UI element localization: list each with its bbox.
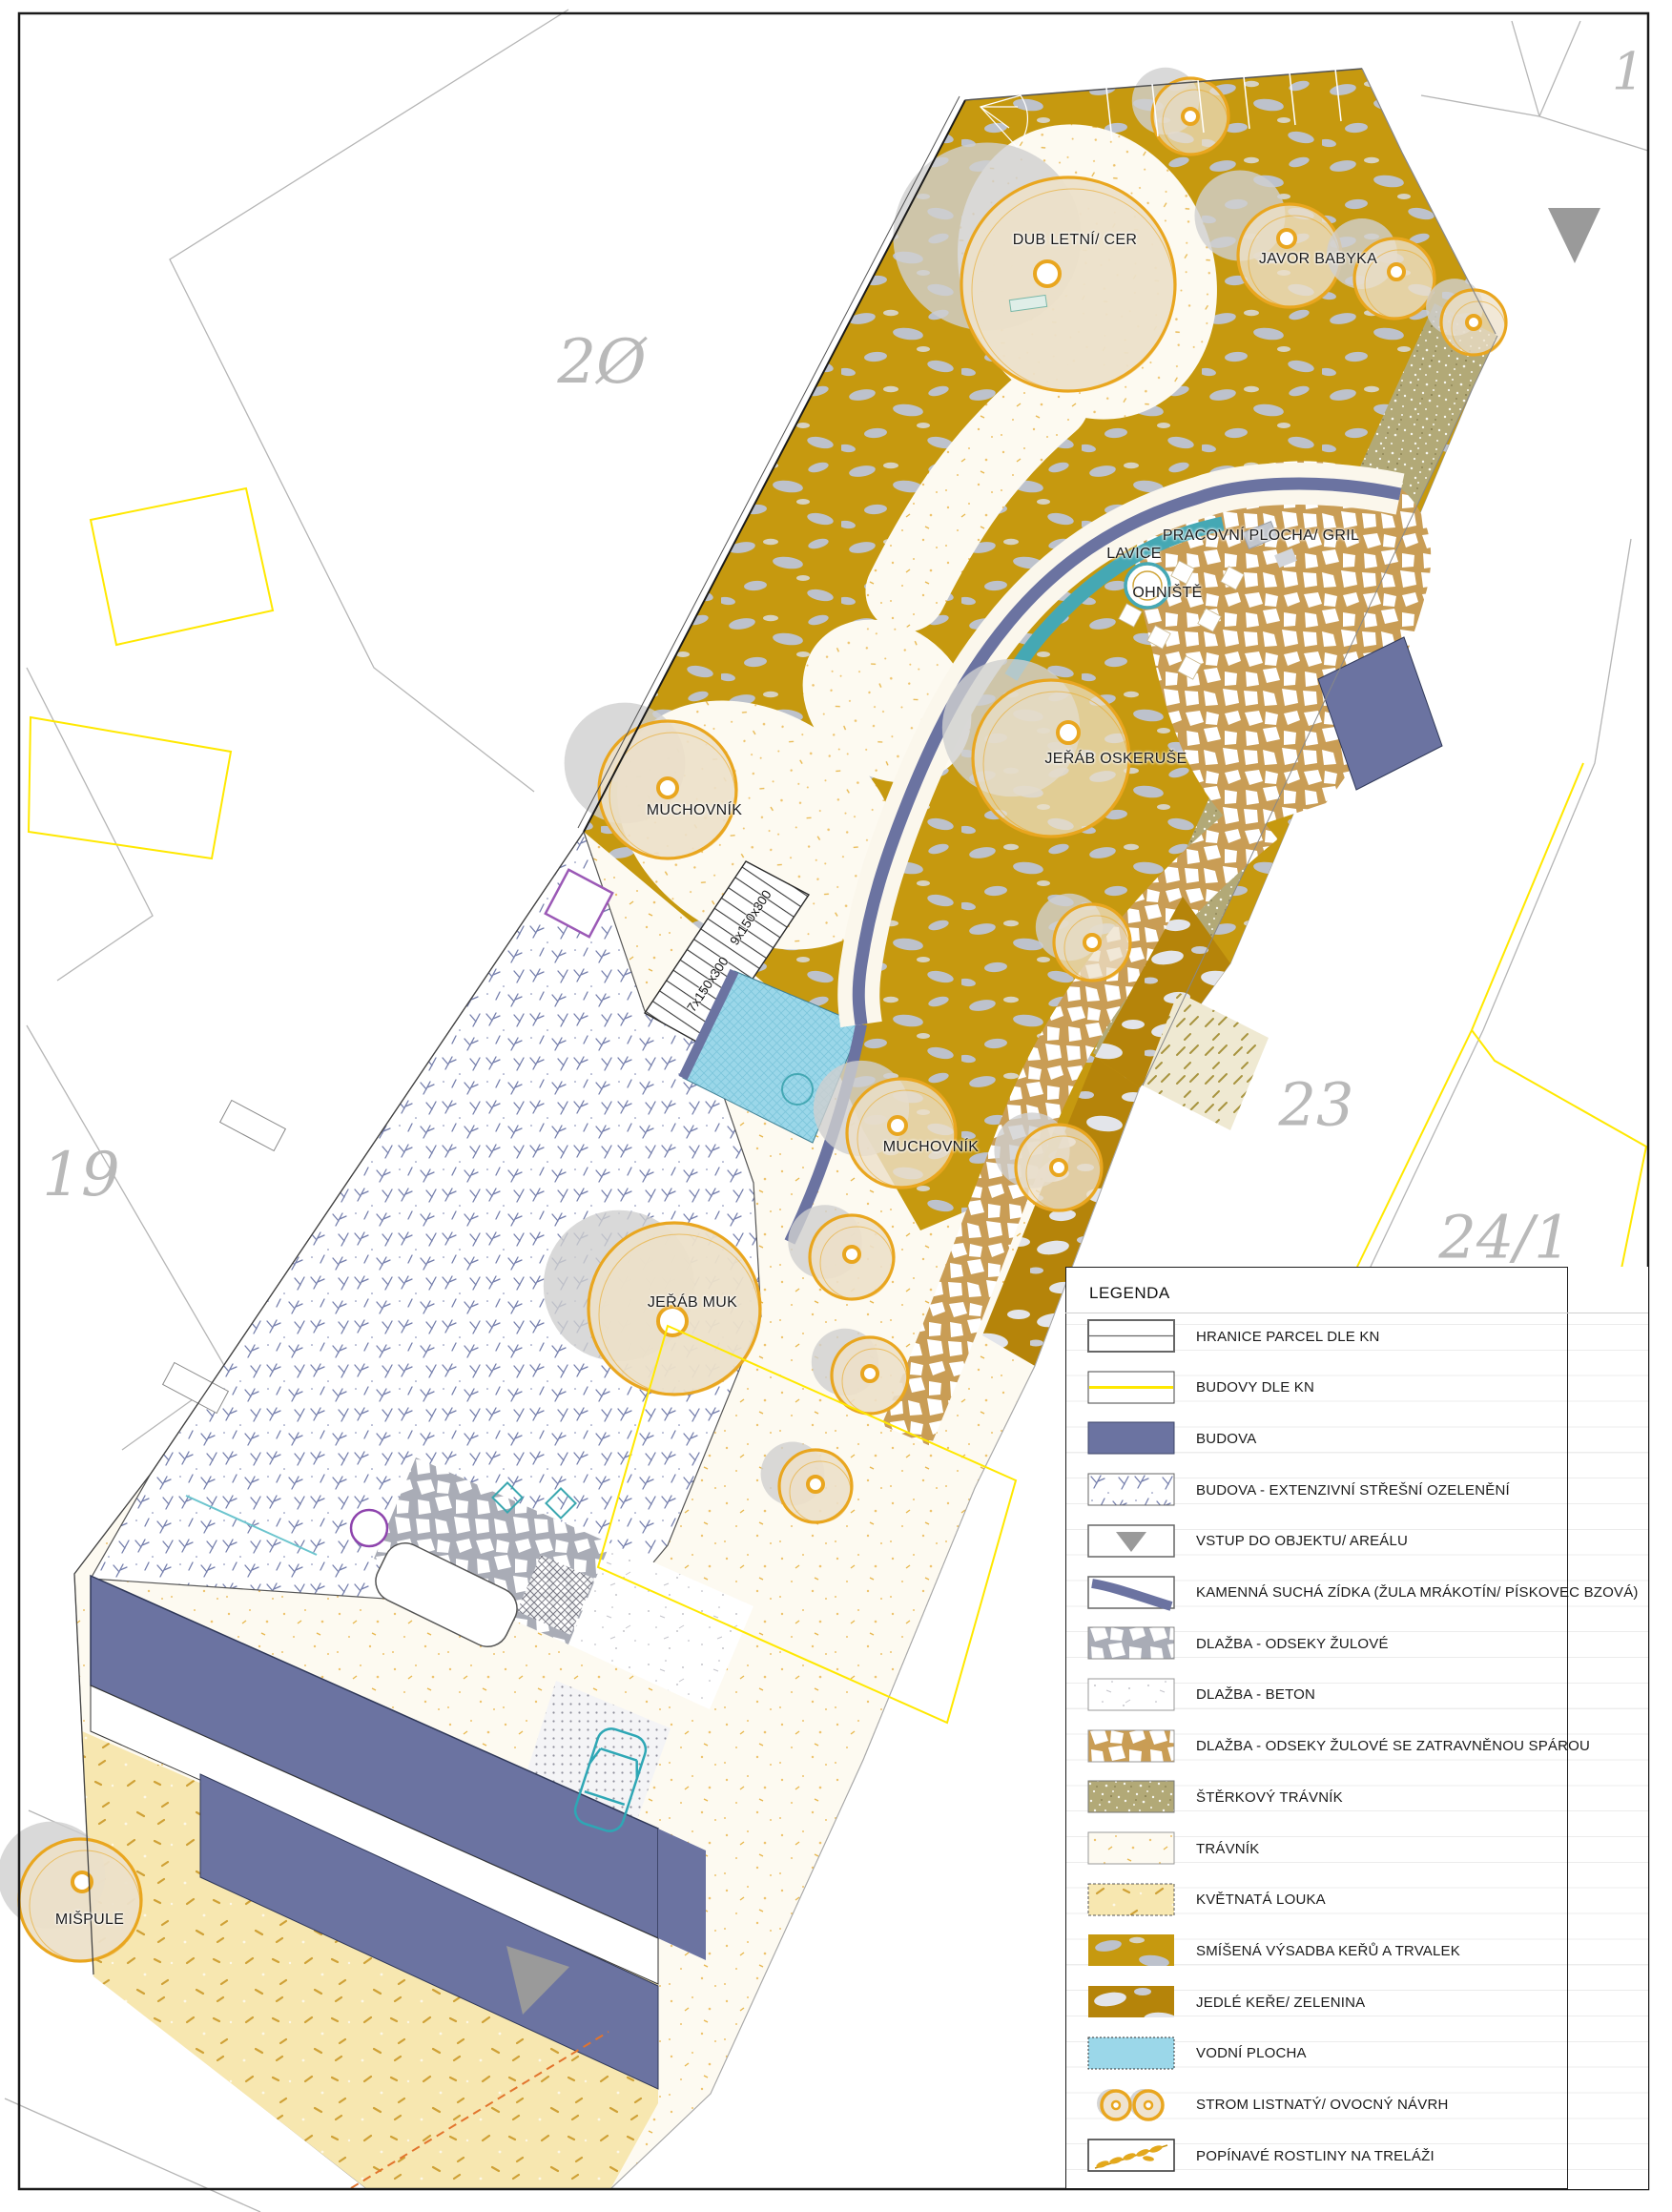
legend-item-travnik: TRÁVNÍK [1087,1824,1644,1873]
plan-label-javor-babyka: JAVOR BABYKA [1259,251,1377,268]
plan-label-jerab-oskeruse: JEŘÁB OSKERUŠE [1044,751,1187,768]
legend-item-label: VSTUP DO OBJEKTU/ AREÁLU [1196,1533,1408,1549]
legend-item-label: BUDOVA [1196,1431,1256,1447]
legend-item-sterk: ŠTĚRKOVÝ TRÁVNÍK [1087,1772,1644,1822]
tree-trunk [862,1366,877,1381]
parcel-19: 19 [42,1140,119,1210]
tree-trunk [1051,1160,1066,1175]
plan-label-lavice: LAVICE [1106,546,1162,563]
legend-item-strecha: BUDOVA - EXTENZIVNÍ STŘEŠNÍ OZELENĚNÍ [1087,1465,1644,1515]
roof-bench [220,1100,286,1150]
plan-label-ohniste: OHNIŠTĚ [1132,585,1202,602]
legend-item-budovy-kn: BUDOVY DLE KN [1087,1363,1644,1413]
parcel-23: 23 [1279,1070,1354,1140]
legend-swatch-vstup [1087,1523,1175,1560]
legend-item-smisena: SMÍŠENÁ VÝSADBA KEŘŮ A TRVALEK [1087,1926,1644,1975]
tree-trunk [844,1247,859,1262]
legend-swatch-strecha [1087,1472,1175,1508]
plan-label-muchovnik-1: MUCHOVNÍK [647,802,742,819]
legend-swatch-budovy-kn [1087,1370,1175,1406]
legend-item-label: KVĚTNATÁ LOUKA [1196,1892,1326,1908]
legend-item-vstup: VSTUP DO OBJEKTU/ AREÁLU [1087,1517,1644,1566]
legend-item-label: JEDLÉ KEŘE/ ZELENINA [1196,1995,1365,2011]
legend-swatch-louka [1087,1882,1175,1918]
legend-item-label: BUDOVY DLE KN [1196,1379,1314,1395]
legend-item-strom: STROM LISTNATÝ/ OVOCNÝ NÁVRH [1087,2080,1644,2130]
legend-swatch-dlazba-zulova [1087,1625,1175,1662]
legend-panel: LEGENDA HRANICE PARCEL DLE KNBUDOVY DLE … [1065,1267,1648,2189]
legend-swatch-budova [1087,1420,1175,1457]
legend-item-dlazba-spara: DLAŽBA - ODSEKY ŽULOVÉ SE ZATRAVNĚNOU SP… [1087,1722,1644,1771]
legend-item-label: KAMENNÁ SUCHÁ ZÍDKA (ŽULA MRÁKOTÍN/ PÍSK… [1196,1584,1639,1601]
plan-label-jerab-muk: JEŘÁB MUK [648,1294,737,1312]
legend-item-label: HRANICE PARCEL DLE KN [1196,1329,1380,1345]
legend-item-label: SMÍŠENÁ VÝSADBA KEŘŮ A TRVALEK [1196,1943,1460,1959]
parcel-1: 1 [1612,42,1644,102]
tree-trunk [1278,230,1295,247]
legend-item-label: ŠTĚRKOVÝ TRÁVNÍK [1196,1789,1343,1806]
roof-bench [163,1362,229,1413]
plan-label-pracovni-plocha: PRACOVNÍ PLOCHA/ GRIL [1163,527,1359,545]
tree-trunk [1058,722,1079,743]
plan-label-muchovnik-2: MUCHOVNÍK [883,1139,979,1156]
legend-swatch-jedle [1087,1984,1175,2020]
legend-item-hranice: HRANICE PARCEL DLE KN [1087,1312,1644,1361]
legend-swatch-strom [1087,2087,1175,2123]
tree-trunk [1084,935,1100,950]
legend-item-label: STROM LISTNATÝ/ OVOCNÝ NÁVRH [1196,2097,1449,2113]
legend-title: LEGENDA [1089,1284,1170,1303]
legend-item-label: BUDOVA - EXTENZIVNÍ STŘEŠNÍ OZELENĚNÍ [1196,1482,1510,1499]
legend-swatch-sterk [1087,1779,1175,1815]
plan-label-dub-letni-cer: DUB LETNÍ/ CER [1013,232,1137,249]
legend-item-label: TRÁVNÍK [1196,1841,1259,1857]
tree-trunk [889,1117,906,1134]
legend-item-label: DLAŽBA - ODSEKY ŽULOVÉ [1196,1636,1389,1652]
legend-item-zidka: KAMENNÁ SUCHÁ ZÍDKA (ŽULA MRÁKOTÍN/ PÍSK… [1087,1568,1644,1618]
legend-item-voda: VODNÍ PLOCHA [1087,2029,1644,2078]
tree-trunk [1035,261,1060,286]
legend-swatch-voda [1087,2036,1175,2072]
water-sphere [782,1074,813,1105]
legend-item-label: DLAŽBA - BETON [1196,1686,1315,1703]
tree-trunk [1183,109,1198,124]
legend-item-label: VODNÍ PLOCHA [1196,2045,1307,2061]
legend-swatch-travnik [1087,1830,1175,1867]
tree-trunk [808,1477,823,1492]
parcel-20: 2Ø [557,327,646,398]
tree-trunk [658,778,677,797]
tree-trunk [1467,316,1480,329]
building-end-block [658,1829,706,1960]
legend-item-dlazba-zulova: DLAŽBA - ODSEKY ŽULOVÉ [1087,1619,1644,1668]
plan-label-mispule: MIŠPULE [55,1912,124,1929]
legend-item-popinave: POPÍNAVÉ ROSTLINY NA TRELÁŽI [1087,2131,1644,2181]
legend-item-label: POPÍNAVÉ ROSTLINY NA TRELÁŽI [1196,2148,1435,2164]
legend-item-budova: BUDOVA [1087,1414,1644,1463]
tree-trunk [1389,264,1404,279]
entrance-arrow-top [1548,208,1600,263]
roof-circle-opening [351,1510,387,1546]
site-plan-page: DUB LETNÍ/ CERJAVOR BABYKAPRACOVNÍ PLOCH… [0,0,1672,2212]
legend-swatch-popinave [1087,2138,1175,2174]
legend-item-louka: KVĚTNATÁ LOUKA [1087,1875,1644,1925]
legend-item-label: DLAŽBA - ODSEKY ŽULOVÉ SE ZATRAVNĚNOU SP… [1196,1738,1590,1754]
legend-item-dlazba-beton: DLAŽBA - BETON [1087,1670,1644,1720]
legend-swatch-zidka [1087,1575,1175,1611]
legend-swatch-dlazba-beton [1087,1677,1175,1713]
legend-swatch-dlazba-spara [1087,1728,1175,1765]
parcel-24-1: 24/1 [1438,1203,1571,1272]
legend-swatch-smisena [1087,1933,1175,1969]
legend-swatch-hranice [1087,1318,1175,1354]
legend-item-jedle: JEDLÉ KEŘE/ ZELENINA [1087,1977,1644,2027]
